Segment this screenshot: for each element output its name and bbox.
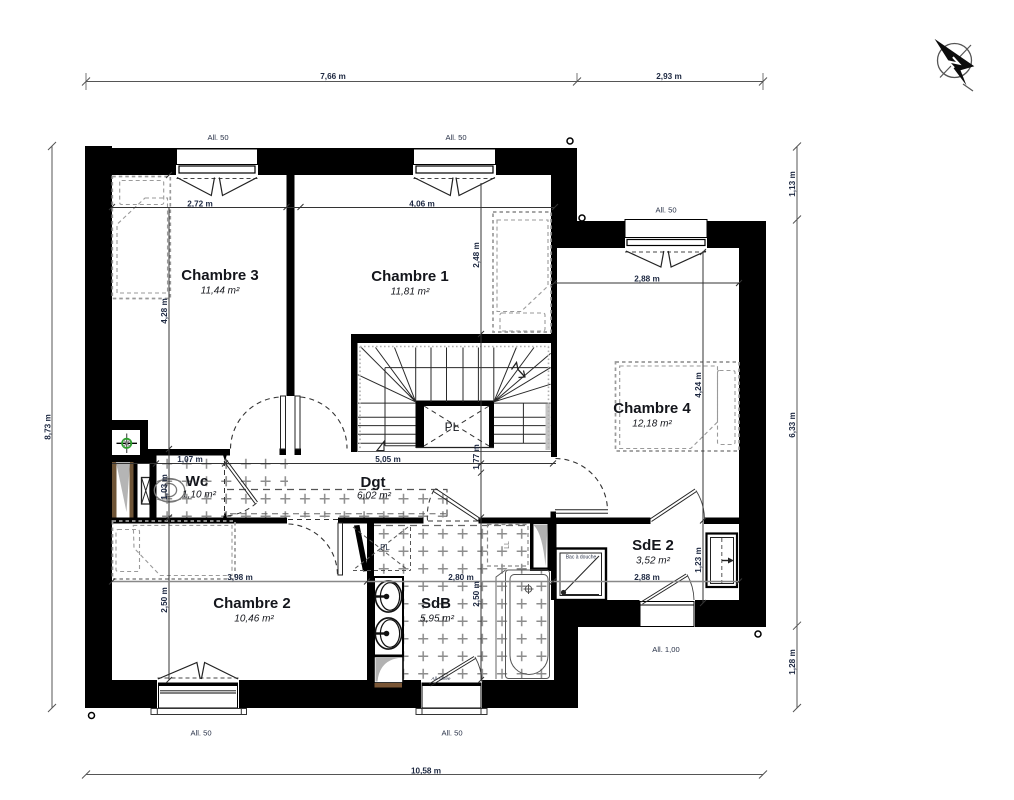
svg-text:PL: PL xyxy=(445,420,460,434)
svg-text:5,05 m: 5,05 m xyxy=(375,455,401,464)
svg-text:10,58 m: 10,58 m xyxy=(411,767,441,776)
svg-text:11,44 m²: 11,44 m² xyxy=(201,286,240,297)
svg-text:2,50 m: 2,50 m xyxy=(160,587,169,613)
svg-text:1,77 m: 1,77 m xyxy=(472,444,481,470)
svg-text:6,02 m²: 6,02 m² xyxy=(357,491,392,502)
svg-text:All. 50: All. 50 xyxy=(445,133,466,142)
svg-text:All. 50: All. 50 xyxy=(207,133,228,142)
svg-text:All. 50: All. 50 xyxy=(441,729,462,738)
svg-text:1,13 m: 1,13 m xyxy=(788,171,797,197)
svg-text:2,48 m: 2,48 m xyxy=(472,242,481,268)
svg-text:2,50 m: 2,50 m xyxy=(472,581,481,607)
svg-text:10,46 m²: 10,46 m² xyxy=(234,614,274,625)
svg-text:Dgt: Dgt xyxy=(361,474,386,491)
svg-text:2,72 m: 2,72 m xyxy=(187,199,213,208)
svg-text:8,73 m: 8,73 m xyxy=(44,414,53,440)
svg-text:LL: LL xyxy=(504,541,511,549)
svg-text:All. 50: All. 50 xyxy=(190,729,211,738)
svg-text:All. 1,00: All. 1,00 xyxy=(652,645,679,654)
svg-text:2,80 m: 2,80 m xyxy=(448,573,474,582)
svg-text:3,98 m: 3,98 m xyxy=(227,573,253,582)
svg-text:5,95 m²: 5,95 m² xyxy=(420,614,455,625)
svg-text:3,52 m²: 3,52 m² xyxy=(636,556,671,567)
svg-text:SdE 2: SdE 2 xyxy=(632,537,674,554)
svg-text:PL: PL xyxy=(380,543,390,552)
svg-text:1,07 m: 1,07 m xyxy=(177,455,203,464)
svg-text:2,93 m: 2,93 m xyxy=(656,72,682,81)
svg-text:Bac à douche: Bac à douche xyxy=(566,555,597,561)
svg-text:12,18 m²: 12,18 m² xyxy=(632,419,672,430)
svg-text:Wc: Wc xyxy=(186,473,209,490)
svg-text:Chambre 2: Chambre 2 xyxy=(213,595,291,612)
svg-text:4,24 m: 4,24 m xyxy=(694,372,703,398)
svg-text:4,06 m: 4,06 m xyxy=(409,199,435,208)
svg-text:2,88 m: 2,88 m xyxy=(634,573,660,582)
svg-text:1,03 m: 1,03 m xyxy=(160,474,169,500)
svg-text:1,23 m: 1,23 m xyxy=(694,547,703,573)
svg-text:2,88 m: 2,88 m xyxy=(634,275,660,284)
svg-text:1,28 m: 1,28 m xyxy=(788,649,797,675)
svg-text:Chambre 1: Chambre 1 xyxy=(371,268,449,285)
svg-text:SdB: SdB xyxy=(421,595,451,612)
svg-text:6,33 m: 6,33 m xyxy=(788,412,797,438)
svg-text:4,28 m: 4,28 m xyxy=(160,298,169,324)
svg-text:11,81 m²: 11,81 m² xyxy=(391,287,430,298)
svg-text:All. vitrée: All. vitrée xyxy=(431,676,451,681)
svg-text:Chambre 3: Chambre 3 xyxy=(181,267,259,284)
svg-text:Chambre 4: Chambre 4 xyxy=(613,400,691,417)
svg-text:7,66 m: 7,66 m xyxy=(320,72,346,81)
svg-text:All. 50: All. 50 xyxy=(655,206,676,215)
svg-text:1,10 m²: 1,10 m² xyxy=(182,490,217,501)
